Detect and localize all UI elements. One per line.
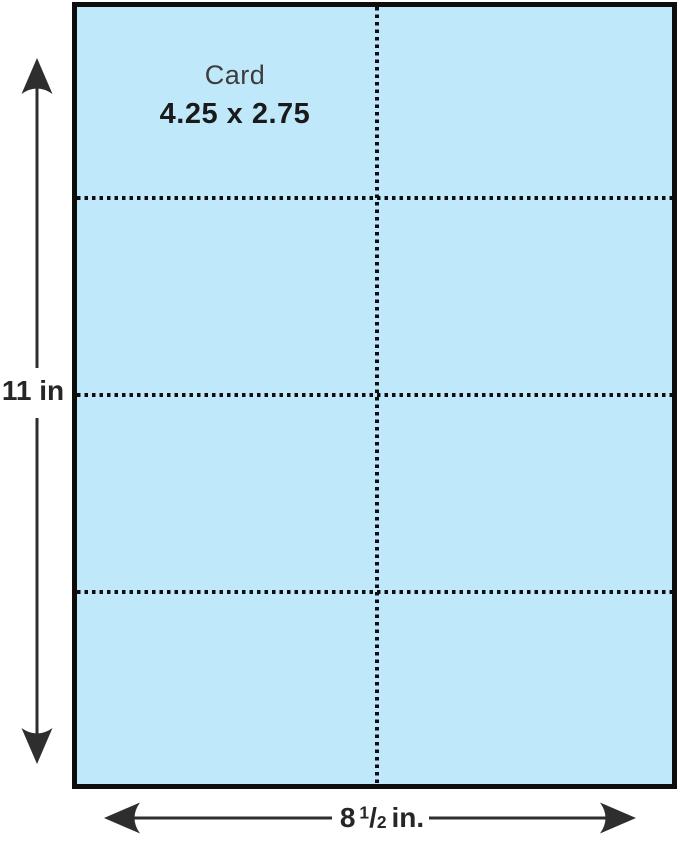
horizontal-cut-line-3 (77, 590, 672, 594)
height-dimension-label: 11 in (0, 374, 66, 408)
card-sheet: Card 4.25 x 2.75 (72, 2, 677, 789)
width-whole-number: 8 (340, 802, 356, 833)
horizontal-cut-line-1 (77, 196, 672, 200)
horizontal-cut-line-2 (77, 393, 672, 397)
card-sheet-diagram: Card 4.25 x 2.75 11 in 81/2in. (0, 0, 679, 841)
width-fraction: 1/2 (359, 802, 386, 833)
width-fraction-denominator: 2 (377, 812, 387, 832)
width-fraction-numerator: 1 (359, 802, 369, 822)
width-dimension-label: 81/2in. (327, 799, 437, 837)
card-size-label: 4.25 x 2.75 (135, 97, 335, 131)
card-label: Card 4.25 x 2.75 (135, 59, 335, 131)
width-fraction-slash: / (369, 802, 377, 833)
card-name-label: Card (135, 59, 335, 91)
height-dimension-arrow (0, 0, 72, 841)
width-unit: in. (392, 802, 425, 833)
